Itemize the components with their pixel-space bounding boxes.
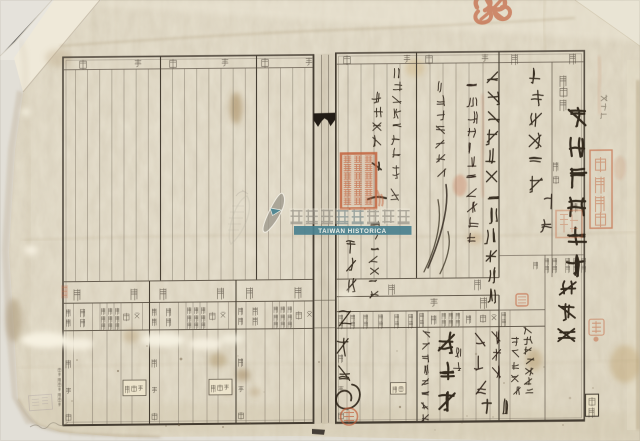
svg-text:TAIWAN HISTORICA: TAIWAN HISTORICA xyxy=(318,228,386,235)
